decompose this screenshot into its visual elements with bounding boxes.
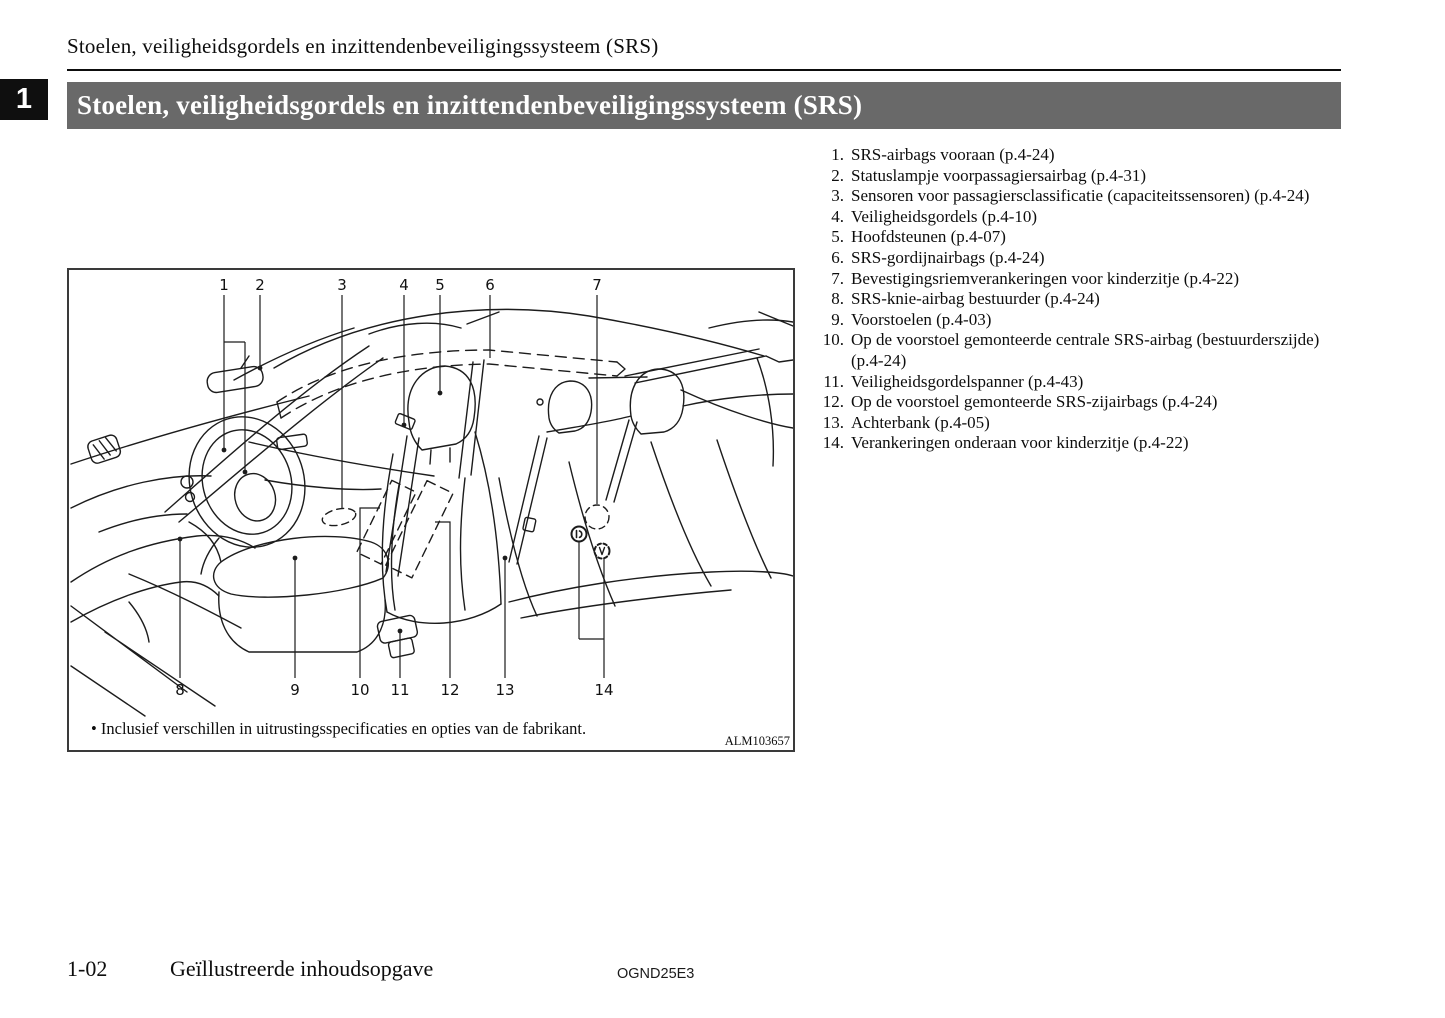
callout-3: 3 bbox=[337, 276, 347, 294]
callout-7: 7 bbox=[592, 276, 602, 294]
callout-6: 6 bbox=[485, 276, 495, 294]
legend-item-number: 9. bbox=[818, 310, 844, 331]
legend-item-text: Op de voorstoel gemonteerde centrale SRS… bbox=[851, 330, 1344, 371]
footer-page-number: 1-02 bbox=[67, 956, 107, 982]
legend-item-text: Verankeringen onderaan voor kinderzitje … bbox=[851, 433, 1344, 454]
legend-item: 2.Statuslampje voorpassagiersairbag (p.4… bbox=[818, 166, 1344, 187]
occupant-sensor-dashed-ellipse bbox=[321, 506, 358, 529]
legend-item-number: 3. bbox=[818, 186, 844, 207]
chapter-tab: 1 bbox=[0, 79, 48, 120]
callout-8: 8 bbox=[175, 681, 185, 699]
legend-item-text: Sensoren voor passagiersclassificatie (c… bbox=[851, 186, 1344, 207]
legend-item-number: 13. bbox=[818, 413, 844, 434]
legend-item: 13.Achterbank (p.4-05) bbox=[818, 413, 1344, 434]
legend-item: 14.Verankeringen onderaan voor kinderzit… bbox=[818, 433, 1344, 454]
legend-item: 4.Veiligheidsgordels (p.4-10) bbox=[818, 207, 1344, 228]
callout-13: 13 bbox=[495, 681, 514, 699]
legend-item-number: 2. bbox=[818, 166, 844, 187]
legend-item: 10.Op de voorstoel gemonteerde centrale … bbox=[818, 330, 1344, 371]
legend-item-text: Veiligheidsgordels (p.4-10) bbox=[851, 207, 1344, 228]
legend-item-text: Bevestigingsriemverankeringen voor kinde… bbox=[851, 269, 1344, 290]
legend-item: 12.Op de voorstoel gemonteerde SRS-zijai… bbox=[818, 392, 1344, 413]
legend-item-number: 10. bbox=[818, 330, 844, 371]
legend-item: 3.Sensoren voor passagiersclassificatie … bbox=[818, 186, 1344, 207]
legend-item-text: Veiligheidsgordelspanner (p.4-43) bbox=[851, 372, 1344, 393]
legend-item: 11.Veiligheidsgordelspanner (p.4-43) bbox=[818, 372, 1344, 393]
footer-section-name: Geïllustreerde inhoudsopgave bbox=[170, 956, 433, 982]
callout-2: 2 bbox=[255, 276, 265, 294]
callout-12: 12 bbox=[440, 681, 459, 699]
legend-item-text: Voorstoelen (p.4-03) bbox=[851, 310, 1344, 331]
callout-4: 4 bbox=[399, 276, 409, 294]
callout-5: 5 bbox=[435, 276, 445, 294]
legend-item-text: SRS-airbags vooraan (p.4-24) bbox=[851, 145, 1344, 166]
legend-item-number: 8. bbox=[818, 289, 844, 310]
legend-item: 7.Bevestigingsriemverankeringen voor kin… bbox=[818, 269, 1344, 290]
legend-item-text: Statuslampje voorpassagiersairbag (p.4-3… bbox=[851, 166, 1344, 187]
legend-item-number: 7. bbox=[818, 269, 844, 290]
legend-item-text: Op de voorstoel gemonteerde SRS-zijairba… bbox=[851, 392, 1344, 413]
legend-item-number: 6. bbox=[818, 248, 844, 269]
curtain-airbag-dashes bbox=[277, 350, 617, 418]
legend-item-text: SRS-gordijnairbags (p.4-24) bbox=[851, 248, 1344, 269]
legend-item-number: 11. bbox=[818, 372, 844, 393]
footer-doc-code: OGND25E3 bbox=[617, 966, 694, 982]
section-title-bar: Stoelen, veiligheidsgordels en inzittend… bbox=[67, 82, 1341, 129]
legend-item-text: Hoofdsteunen (p.4-07) bbox=[851, 227, 1344, 248]
lower-anchor-marker-right bbox=[595, 544, 610, 559]
callout-10: 10 bbox=[350, 681, 369, 699]
callout-numbers: 1 2 3 4 5 6 7 8 9 10 11 12 13 14 bbox=[175, 276, 613, 699]
lower-anchor-marker-left bbox=[572, 527, 587, 542]
tether-anchor-dashed-circle bbox=[585, 505, 609, 529]
manual-page: Stoelen, veiligheidsgordels en inzittend… bbox=[0, 0, 1445, 1018]
figure-code: ALM103657 bbox=[725, 734, 790, 749]
legend-list: 1.SRS-airbags vooraan (p.4-24) 2.Statusl… bbox=[818, 145, 1344, 454]
figure-footnote: • Inclusief verschillen in uitrustingssp… bbox=[91, 719, 586, 739]
legend-item-number: 1. bbox=[818, 145, 844, 166]
legend-item: 5.Hoofdsteunen (p.4-07) bbox=[818, 227, 1344, 248]
callout-9: 9 bbox=[290, 681, 300, 699]
legend-item-number: 12. bbox=[818, 392, 844, 413]
legend-item-number: 5. bbox=[818, 227, 844, 248]
callout-11: 11 bbox=[390, 681, 409, 699]
legend-item: 8.SRS-knie-airbag bestuurder (p.4-24) bbox=[818, 289, 1344, 310]
rearview-mirror bbox=[206, 356, 264, 394]
header-rule bbox=[67, 69, 1341, 71]
callout-14: 14 bbox=[594, 681, 613, 699]
callout-1: 1 bbox=[219, 276, 229, 294]
vehicle-interior-diagram: 1 2 3 4 5 6 7 8 9 10 11 12 13 14 bbox=[69, 270, 793, 750]
legend-item-text: SRS-knie-airbag bestuurder (p.4-24) bbox=[851, 289, 1344, 310]
vehicle-interior-figure: 1 2 3 4 5 6 7 8 9 10 11 12 13 14 • Inclu… bbox=[67, 268, 795, 752]
legend-item-number: 14. bbox=[818, 433, 844, 454]
legend-item: 6.SRS-gordijnairbags (p.4-24) bbox=[818, 248, 1344, 269]
legend-item: 9.Voorstoelen (p.4-03) bbox=[818, 310, 1344, 331]
legend-item-text: Achterbank (p.4-05) bbox=[851, 413, 1344, 434]
legend-item-number: 4. bbox=[818, 207, 844, 228]
running-title: Stoelen, veiligheidsgordels en inzittend… bbox=[67, 34, 658, 59]
legend-item: 1.SRS-airbags vooraan (p.4-24) bbox=[818, 145, 1344, 166]
callout-leader-lines bbox=[180, 295, 604, 678]
